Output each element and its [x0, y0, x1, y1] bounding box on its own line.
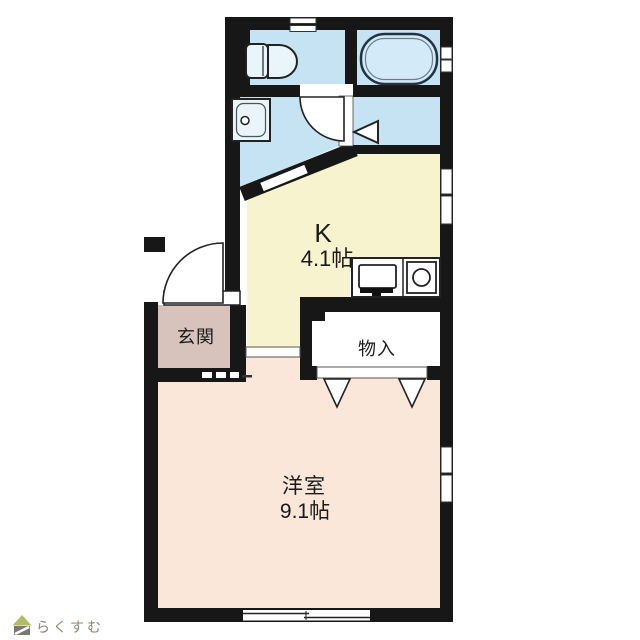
floorplan: K 4.1帖 玄関 物入 洋室 9.1帖 らくすむ	[0, 0, 640, 640]
closet-bottom-right-wall	[427, 366, 453, 380]
western-room-bottom-window	[243, 610, 370, 621]
right-wall	[440, 17, 453, 622]
kitchen-sink-icon	[359, 265, 396, 296]
western-room-area-label: 9.1帖	[280, 500, 330, 523]
closet-label: 物入	[358, 339, 396, 359]
changing-area-bottom-wall	[353, 145, 453, 154]
washbasin-icon	[232, 99, 270, 141]
footer-logo: らくすむ	[13, 615, 105, 635]
western-room-label: 洋室	[282, 475, 326, 498]
entrance-bottom-wall	[144, 368, 243, 382]
bathroom-side-window	[441, 47, 452, 72]
porch-wall-stub	[144, 237, 165, 252]
toilet-bath-divider-wall	[345, 30, 357, 85]
bathtub-icon	[361, 34, 437, 84]
kitchen-side-window	[441, 169, 452, 224]
kitchen-area-label: 4.1帖	[301, 246, 354, 271]
closet-step-wall	[300, 297, 325, 321]
kitchen-room-threshold	[246, 347, 300, 357]
closet-bottom-left-wall	[300, 366, 317, 380]
left-wall-lower	[144, 302, 158, 608]
toilet-icon	[246, 44, 297, 78]
entrance-label: 玄関	[177, 327, 215, 347]
top-wall	[225, 17, 453, 30]
kitchen-label: K	[314, 218, 332, 248]
house-icon	[13, 615, 32, 635]
stove-burner-icon	[407, 262, 436, 293]
kitchen-counter	[352, 258, 440, 297]
entrance-door-swing-icon	[163, 243, 223, 303]
closet-threshold	[317, 367, 427, 378]
logo-text: らくすむ	[36, 619, 104, 635]
western-room-side-window	[441, 447, 452, 502]
